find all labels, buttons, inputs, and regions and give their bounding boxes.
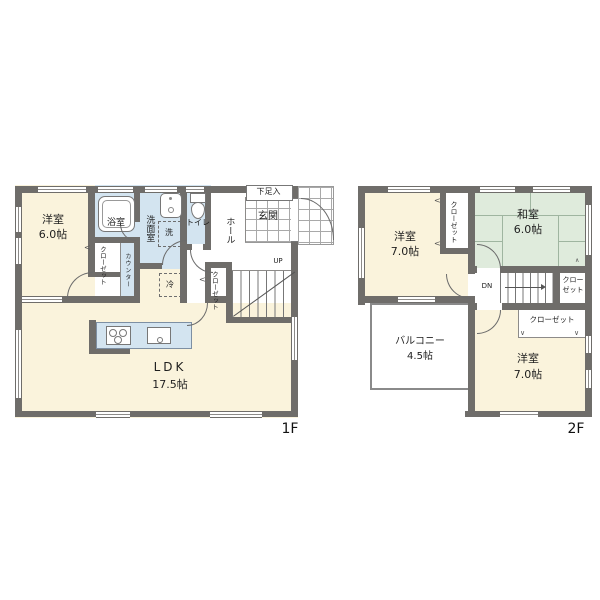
- sliding-door: [22, 296, 62, 303]
- stairs-dn-label: DN: [478, 282, 496, 290]
- wall: [468, 266, 477, 273]
- genkan-label: 玄関: [251, 211, 285, 223]
- floor1-label: 1F: [278, 421, 302, 437]
- balcony-label: バルコニー: [385, 336, 455, 348]
- balcony-size-label: 4.5帖: [385, 351, 455, 363]
- floor2-label: 2F: [564, 421, 588, 437]
- room-size-label: 7.0帖: [370, 246, 440, 259]
- window: [96, 411, 130, 418]
- wall: [140, 263, 162, 269]
- wall: [500, 266, 592, 273]
- closet-label: クローゼット: [450, 197, 458, 247]
- room-label: 洋室: [18, 214, 88, 227]
- closet-label: クローゼット: [209, 271, 219, 295]
- washbasin-icon: [160, 193, 182, 218]
- door-swing-mark: ∨: [574, 330, 579, 337]
- stairs-1f-top-line: [232, 270, 291, 271]
- room-size-label: 7.0帖: [495, 369, 561, 382]
- washer-label: 洗: [158, 228, 180, 237]
- ldk-label: LDK: [130, 361, 210, 375]
- window: [98, 186, 133, 193]
- wall: [502, 303, 592, 310]
- window: [291, 317, 298, 360]
- wall: [226, 317, 298, 323]
- wall: [440, 248, 475, 254]
- window: [186, 186, 204, 193]
- wall: [88, 186, 95, 274]
- room-label: 洋室: [370, 231, 440, 244]
- tatami-line: [475, 241, 502, 242]
- washroom-label: 洗面室: [144, 208, 154, 248]
- stairs-2f-arrow-line: [505, 287, 542, 288]
- ldk-size-label: 17.5帖: [130, 379, 210, 392]
- window: [533, 186, 570, 193]
- room-size-label: 6.0帖: [495, 224, 561, 237]
- wall: [468, 192, 475, 274]
- fridge-label: 冷: [159, 280, 181, 289]
- floorplan-canvas: 洋室 6.0帖 浴室 洗面室 トイレ ホール 玄関 下足入 クローゼット カウン…: [0, 0, 600, 600]
- toilet-label: トイレ: [185, 218, 211, 227]
- window: [500, 411, 538, 417]
- window: [358, 228, 365, 278]
- room-size-label: 6.0帖: [18, 229, 88, 242]
- room-label: 和室: [495, 209, 561, 222]
- window: [585, 205, 592, 255]
- stove-icon: [106, 326, 131, 345]
- closet-label: クロー: [560, 276, 586, 284]
- window: [585, 370, 592, 388]
- window: [585, 336, 592, 353]
- sink-icon: [147, 327, 171, 344]
- window: [145, 186, 177, 193]
- window: [38, 186, 86, 193]
- door-swing-mark: <: [434, 240, 441, 248]
- window: [388, 186, 430, 193]
- bath-label: 浴室: [94, 218, 138, 228]
- stairs-2f-arrowhead: [541, 284, 546, 290]
- shoe-cabinet-label: 下足入: [246, 187, 291, 196]
- door-swing-mark: <: [434, 197, 441, 205]
- balcony-sliding-door: [398, 296, 435, 303]
- genkan-step-line: [245, 197, 246, 242]
- tatami-line: [558, 241, 586, 242]
- window: [210, 411, 262, 418]
- closet-label: ゼット: [560, 286, 586, 294]
- door-swing-mark: ∨: [520, 330, 525, 337]
- stairs-up-label: UP: [266, 257, 290, 265]
- closet-label: クローゼット: [97, 246, 107, 270]
- window: [480, 186, 515, 193]
- wall: [468, 303, 477, 310]
- window: [15, 238, 22, 264]
- room-label: 洋室: [495, 353, 561, 366]
- counter-label: カウンター: [123, 247, 130, 293]
- door-fold-mark: ∧: [575, 258, 579, 264]
- window: [15, 330, 22, 398]
- wall: [95, 296, 140, 303]
- entrance-door-gap: [291, 198, 298, 242]
- hall-label: ホール: [224, 210, 234, 250]
- closet-label: クローゼット: [520, 316, 584, 325]
- tatami-line: [502, 215, 503, 268]
- door-swing-mark: <: [199, 276, 206, 284]
- door-arc: [190, 250, 213, 273]
- wall: [440, 192, 446, 254]
- door-swing-mark: <: [84, 244, 91, 252]
- wall: [468, 298, 475, 411]
